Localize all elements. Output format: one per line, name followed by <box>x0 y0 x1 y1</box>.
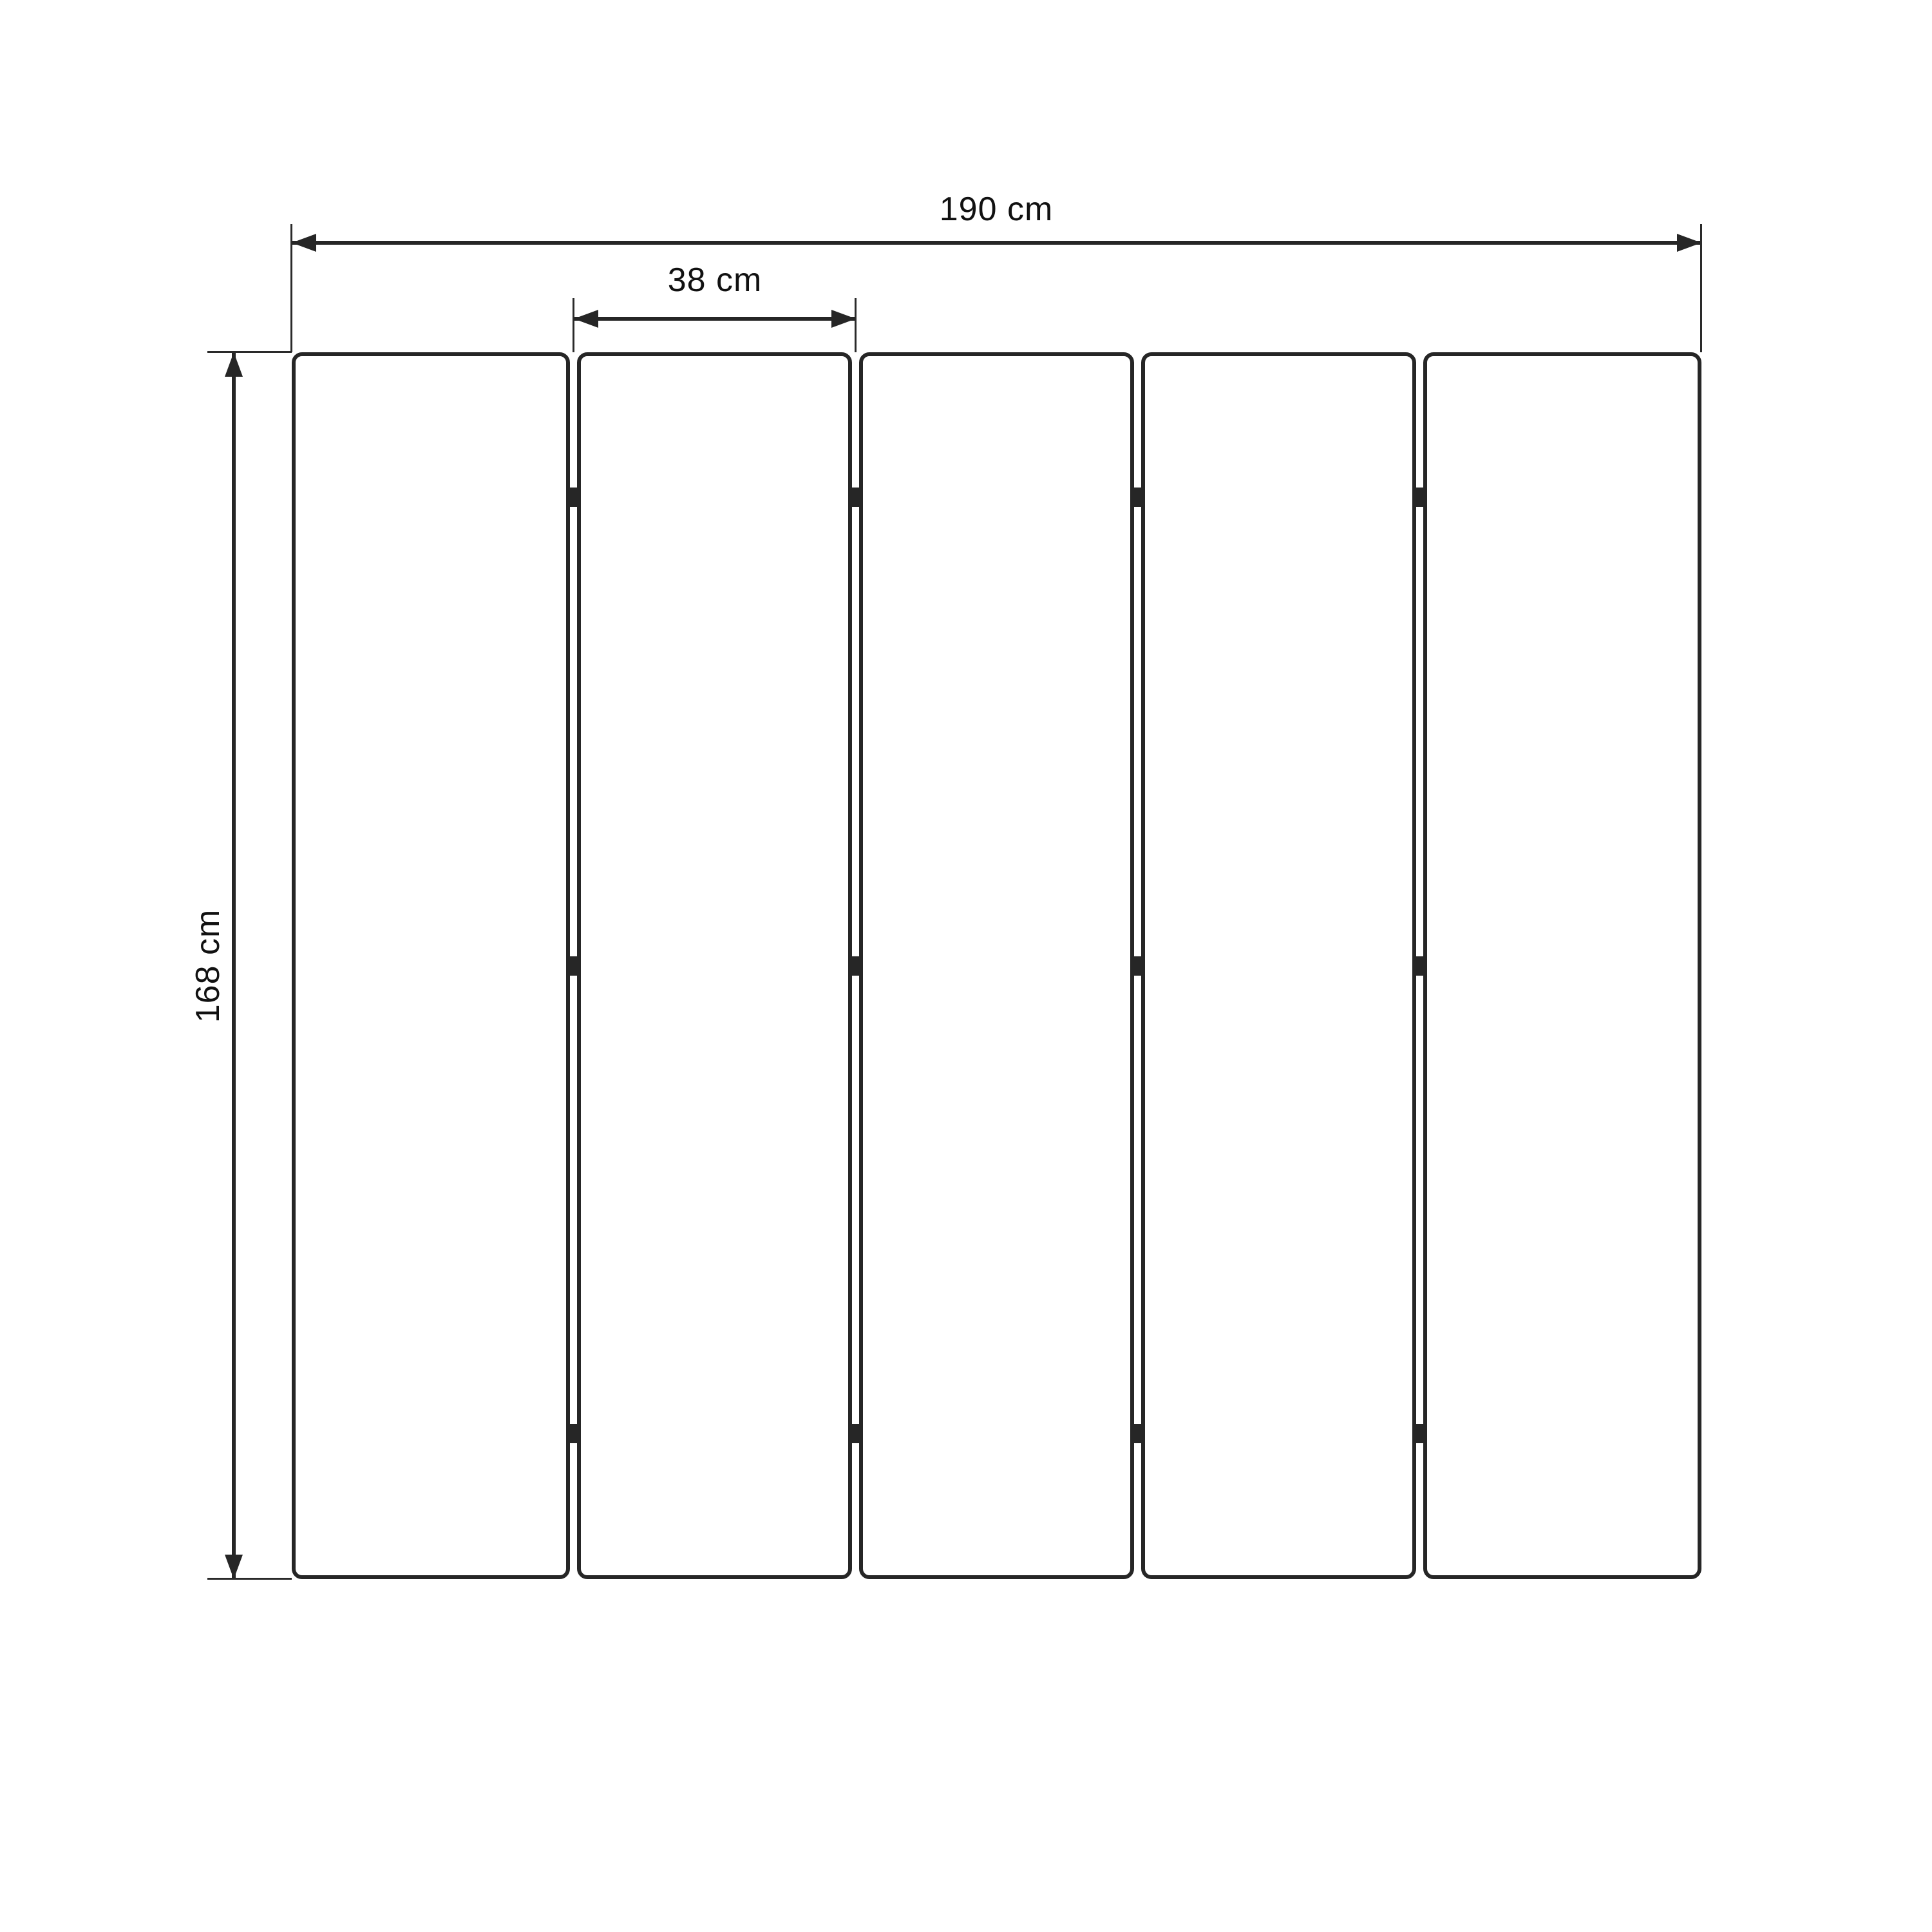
panel-5 <box>1423 352 1701 1579</box>
hinge-mark <box>570 1424 578 1443</box>
hinge-mark <box>570 956 578 976</box>
height-dimension-label: 168 cm <box>189 909 227 1023</box>
total-width-dimension-label: 190 cm <box>940 190 1054 229</box>
panel-2 <box>577 352 852 1579</box>
arrowhead-down-icon <box>225 1555 243 1579</box>
hinge-mark <box>570 488 578 507</box>
panel-width-dimension-line <box>574 317 856 321</box>
arrowhead-left-icon <box>574 310 598 328</box>
panel-width-dimension-label: 38 cm <box>668 261 762 299</box>
extension-line-total-right <box>1700 224 1702 352</box>
extension-line-height-top <box>207 351 292 353</box>
hinge-mark <box>852 488 860 507</box>
hinge-mark <box>1416 488 1423 507</box>
hinge-mark <box>1133 1424 1141 1443</box>
extension-line-height-bottom <box>207 1578 292 1580</box>
total-width-dimension-line <box>292 241 1701 245</box>
arrowhead-right-icon <box>831 310 856 328</box>
extension-line-panel-left <box>573 298 574 352</box>
dimension-drawing-canvas: 190 cm 38 cm 168 cm <box>0 0 1932 1932</box>
arrowhead-right-icon <box>1677 234 1701 252</box>
extension-line-total-left <box>290 224 292 352</box>
hinge-mark <box>852 1424 860 1443</box>
hinge-mark <box>1133 488 1141 507</box>
hinge-mark <box>1416 956 1423 976</box>
hinge-mark <box>1133 956 1141 976</box>
panel-3 <box>859 352 1134 1579</box>
hinge-mark <box>852 956 860 976</box>
panel-4 <box>1141 352 1416 1579</box>
height-dimension-line <box>232 352 236 1579</box>
hinge-mark <box>1416 1424 1423 1443</box>
arrowhead-left-icon <box>292 234 316 252</box>
panel-1 <box>292 352 570 1579</box>
arrowhead-up-icon <box>225 352 243 377</box>
extension-line-panel-right <box>855 298 857 352</box>
